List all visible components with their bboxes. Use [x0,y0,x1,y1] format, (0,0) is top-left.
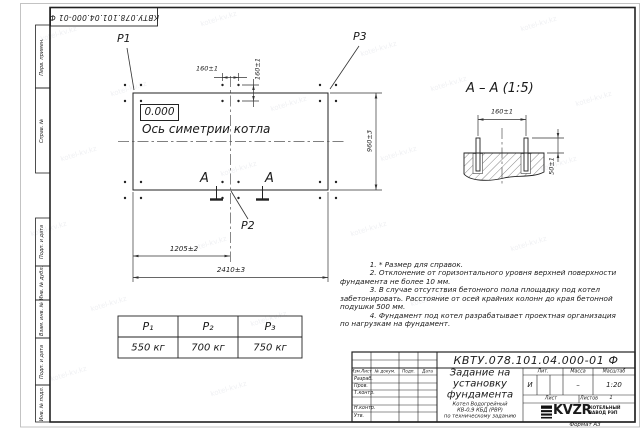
kvzr-logo-caption: КОТЕЛЬНЫЙ ЗАВОД РЭП [589,406,621,417]
dim-bolt-spacing-y: 160±1 [254,58,261,80]
scale-value: 1:20 [606,382,622,390]
mass-value: – [576,382,580,390]
margin-label-inv-podl: Инв. № подл. [40,386,46,421]
dim-bolt-spacing-x: 160±1 [196,65,218,72]
dim-section-160: 160±1 [491,108,513,115]
load-table-header-p1: P₁ [142,320,153,332]
role-utv: Утв. [354,414,364,419]
lit-value: И [527,382,532,390]
load-table-value-p1: 550 кг [131,342,165,353]
sheet-label: Лист [545,397,557,402]
rev-col-data: Дата [422,369,433,374]
anchor-bolt [476,138,480,171]
dim-section-50: 50±1 [548,157,555,175]
kvzr-logo-icon [540,406,553,419]
lit-label: Лит. [537,369,548,374]
dim-width-2410: 2410±3 [217,267,245,275]
anchor-bolt [524,138,528,171]
notes-text: 1. * Размер для справок. 2. Отклонение о… [340,261,616,329]
sheets-label: Листов [580,397,598,402]
axis-of-symmetry-label: Ось симетрии котла [142,123,270,136]
margin-label-inv-dubl: Инв. № дубл. [40,266,46,300]
load-table-header-p3: P₃ [264,320,275,332]
role-razrab: Разраб. [354,377,373,382]
title-block-doc-number: КВТУ.078.101.04.000-01 Ф [453,354,618,366]
section-title: А – А (1:5) [466,82,534,97]
drawing-sheet: kotel-kv.kz kotel-kv.kz kotel-kv.kz kote… [0,0,644,430]
rev-col-docnum: № докум. [375,369,396,374]
title-block-doc-subtitle: Котел Водогрейный КВ-0,9 КБД (РВР) по те… [444,402,516,421]
margin-label-vzam-inv: Взам. инв. № [40,302,46,336]
mass-label: Масса [570,369,585,374]
margin-label-sprav-no: Справ. № [40,118,46,142]
role-tkontr: Т.контр. [354,391,375,396]
flipped-doc-number: КВТУ.078.101.04.000-01 Ф [49,13,159,21]
rev-col-podp: Подп. [402,369,415,374]
scale-label: Масштаб [603,369,626,374]
load-table-value-p2: 700 кг [191,342,225,353]
rev-col-izm-list: Изм.Лист [351,369,371,374]
title-block-doc-title: Задание на установку фундамента [447,368,513,401]
section-letter-right: А [265,172,274,187]
section-letter-left: А [200,172,209,187]
point-label-p3: P3 [353,31,367,43]
margin-label-podp-data-2: Подп. и дата [40,344,46,378]
format-label: Формат А3 [569,422,600,428]
point-label-p1: P1 [117,33,131,45]
role-prov: Пров. [354,384,368,389]
sheets-value: 1 [609,396,612,402]
margin-label-podp-data-1: Подп. и дата [40,225,46,259]
load-table-value-p3: 750 кг [253,342,287,353]
load-table-header-p2: P₂ [202,320,213,332]
point-label-p2: P2 [241,220,255,232]
dim-height-960: 960±3 [366,130,373,152]
kvzr-logo-text: KVZR [553,404,591,419]
role-nkontr: Н.контр. [354,406,375,411]
level-mark-box: 0.000 [140,104,179,121]
dim-half-width-1205: 1205±2 [170,246,198,254]
margin-label-perv-primen: Перв. примен. [40,38,46,76]
